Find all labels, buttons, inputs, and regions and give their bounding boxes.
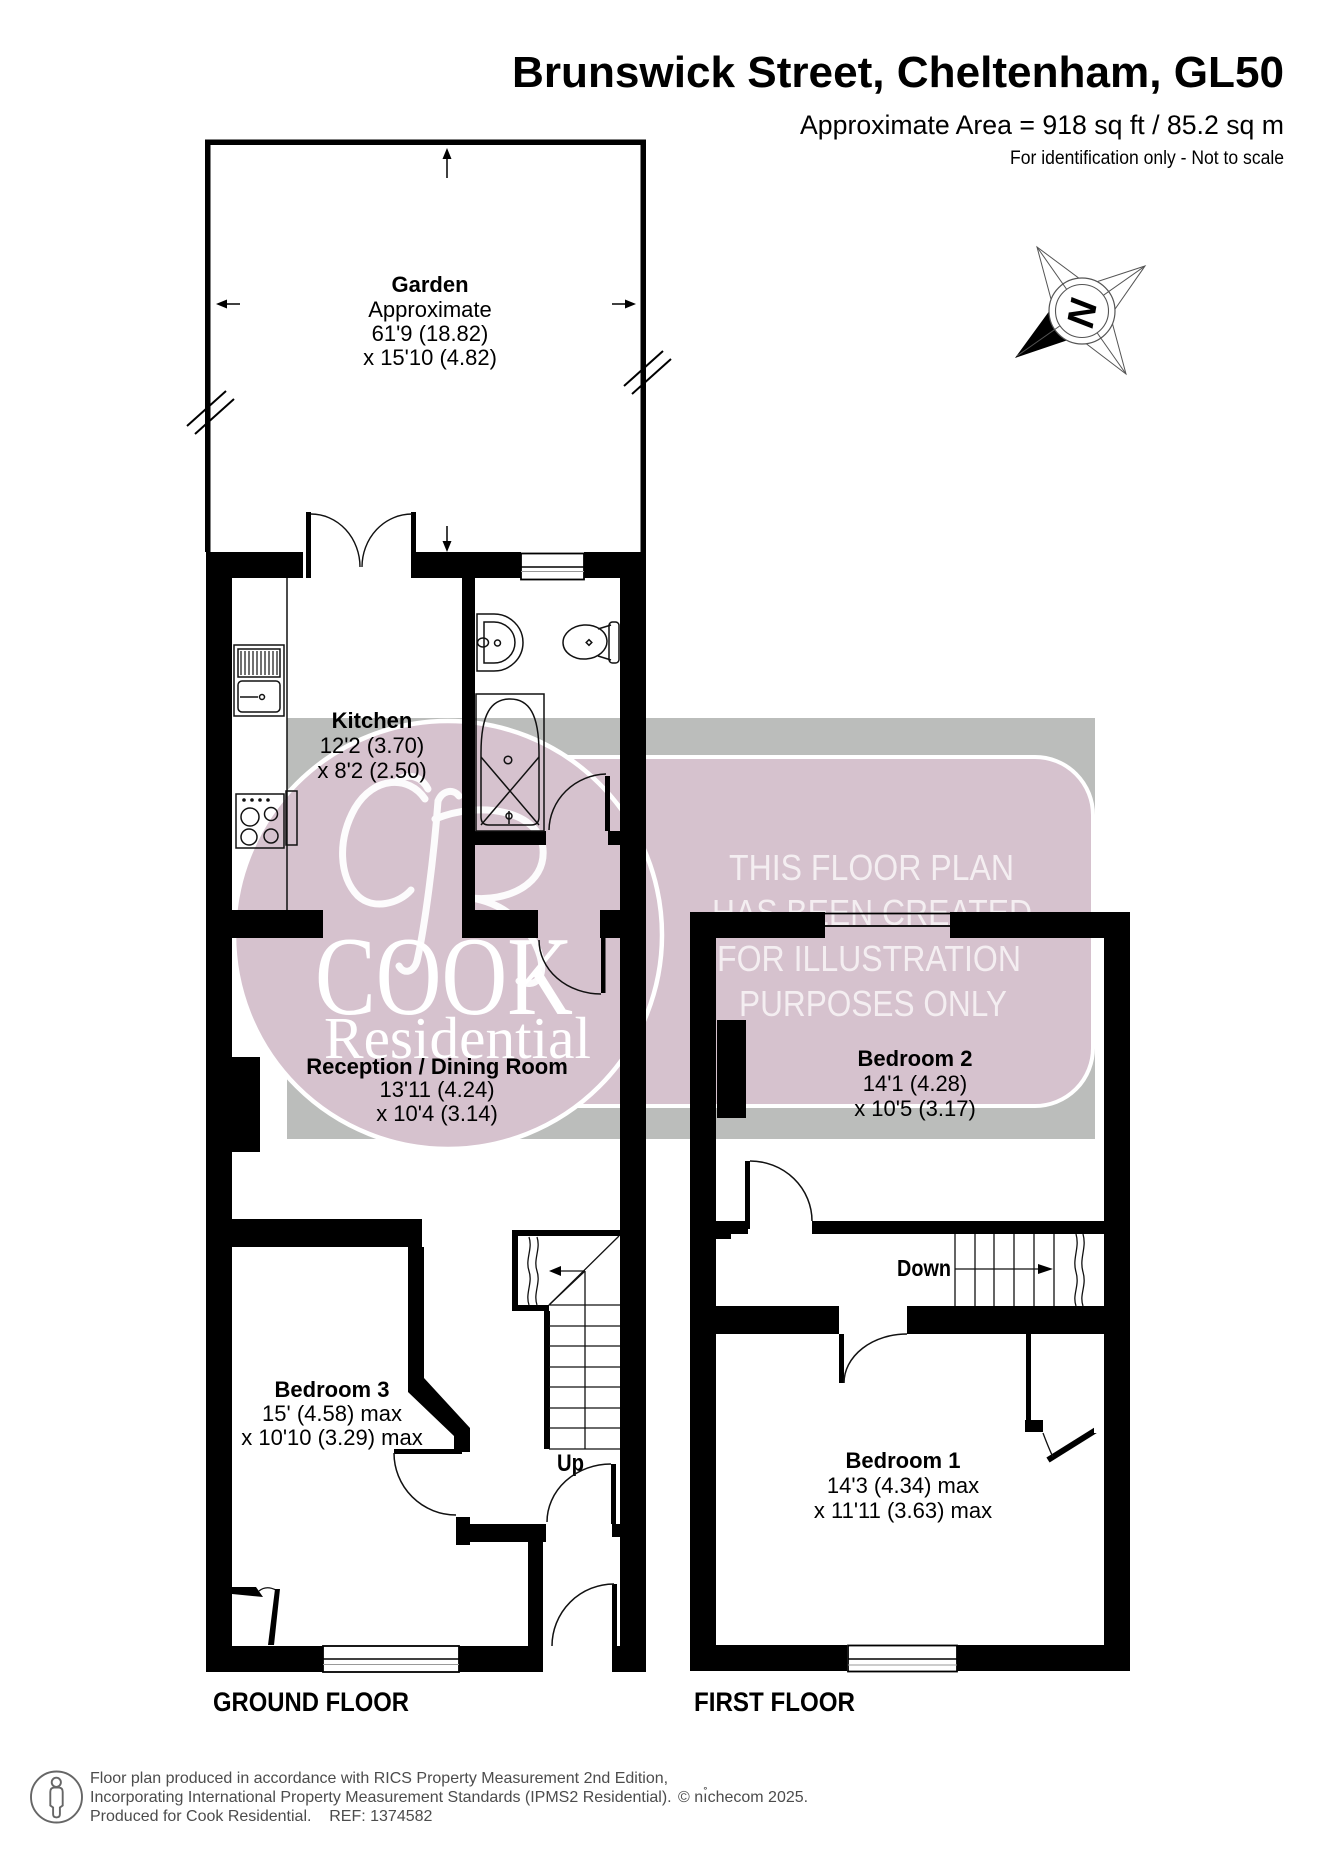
svg-text:FOR ILLUSTRATION: FOR ILLUSTRATION <box>717 938 1021 979</box>
svg-text:61'9 (18.82): 61'9 (18.82) <box>372 321 489 346</box>
svg-text:x 10'4 (3.14): x 10'4 (3.14) <box>376 1101 498 1126</box>
svg-text:Incorporating International Pr: Incorporating International Property Mea… <box>90 1789 672 1806</box>
svg-text:© nı̊checom 2025.: © nı̊checom 2025. <box>678 1787 808 1806</box>
svg-text:THIS FLOOR PLAN: THIS FLOOR PLAN <box>729 847 1014 888</box>
svg-text:Bedroom 1: Bedroom 1 <box>846 1448 961 1473</box>
svg-text:14'3 (4.34) max: 14'3 (4.34) max <box>827 1473 979 1498</box>
svg-text:Garden: Garden <box>391 272 468 297</box>
svg-text:Up: Up <box>557 1450 584 1477</box>
svg-text:x 10'5 (3.17): x 10'5 (3.17) <box>854 1096 976 1121</box>
svg-text:GROUND FLOOR: GROUND FLOOR <box>213 1687 409 1717</box>
svg-text:x 11'11 (3.63) max: x 11'11 (3.63) max <box>814 1498 992 1523</box>
svg-text:x 10'10 (3.29) max: x 10'10 (3.29) max <box>241 1425 423 1450</box>
svg-text:12'2 (3.70): 12'2 (3.70) <box>320 733 425 758</box>
svg-text:x 8'2 (2.50): x 8'2 (2.50) <box>317 758 426 783</box>
svg-text:x 15'10 (4.82): x 15'10 (4.82) <box>363 345 497 370</box>
svg-text:Kitchen: Kitchen <box>332 708 413 733</box>
svg-text:Floor plan produced in accorda: Floor plan produced in accordance with R… <box>90 1770 668 1787</box>
svg-text:Bedroom 2: Bedroom 2 <box>858 1046 973 1071</box>
svg-text:Brunswick Street, Cheltenham,: Brunswick Street, Cheltenham, GL50 <box>512 48 1284 97</box>
svg-text:FIRST FLOOR: FIRST FLOOR <box>694 1687 855 1717</box>
svg-text:Produced for Cook Residential.: Produced for Cook Residential. REF: 1374… <box>90 1808 433 1825</box>
svg-text:For identification only - Not: For identification only - Not to scale <box>1010 148 1284 169</box>
svg-text:Approximate: Approximate <box>368 297 492 322</box>
svg-text:15' (4.58) max: 15' (4.58) max <box>262 1401 402 1426</box>
svg-text:13'11 (4.24): 13'11 (4.24) <box>379 1077 494 1102</box>
svg-text:PURPOSES ONLY: PURPOSES ONLY <box>739 983 1007 1024</box>
svg-text:Reception / Dining Room: Reception / Dining Room <box>306 1054 568 1079</box>
svg-text:Approximate Area = 918 sq ft /: Approximate Area = 918 sq ft / 85.2 sq m <box>800 110 1284 140</box>
svg-text:Down: Down <box>897 1255 951 1281</box>
svg-text:Bedroom 3: Bedroom 3 <box>275 1377 390 1402</box>
svg-text:14'1 (4.28): 14'1 (4.28) <box>863 1071 968 1096</box>
